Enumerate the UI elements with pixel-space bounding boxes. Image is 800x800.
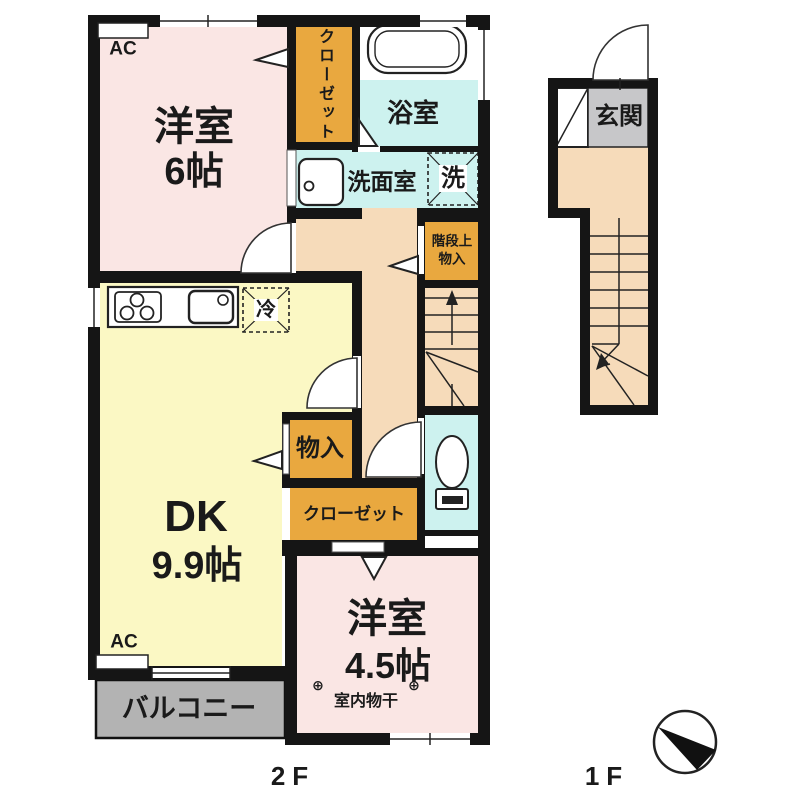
window [160,15,257,27]
bathtub-icon [368,25,466,73]
dk-size: 9.9帖 [152,547,243,585]
storage-label: 物入 [296,437,344,461]
window [152,666,230,680]
washbasin-icon [299,159,343,205]
entrance-door-arc [593,25,648,80]
drying-symbol: ⊕ [312,678,324,692]
closet-north-label: クローゼット [316,28,332,142]
ac-label: AC [109,40,136,59]
ac-label: AC [110,633,137,652]
dk-name: DK [164,495,228,539]
stove-icon [115,292,161,322]
ac-unit [98,23,148,38]
fridge-label: 冷 [254,299,278,321]
drying-label: 室内物干 [334,694,398,710]
toilet-icon [436,436,468,509]
kitchen-sink-icon [189,291,233,323]
compass-icon [654,711,716,773]
washer-label: 洗 [439,165,467,192]
room-6jo-size: 6帖 [164,153,223,191]
room-6jo-name: 洋室 [154,107,234,147]
genkan-label: 玄関 [595,105,643,129]
ac-unit [96,655,148,669]
washroom-label: 洗面室 [348,171,417,194]
stair-storage-line1: 階段上 [432,234,473,248]
window [390,733,470,745]
shoe-cabinet [556,88,588,147]
window [88,288,100,327]
floorplan: AC 洋室 6帖 クローゼット 浴室 洗面室 洗 階段上 物入 冷 DK 9.9… [0,0,800,800]
closet-south-label: クローゼット [303,506,405,523]
window [420,15,466,27]
floor-1f-label: 1F [585,763,629,789]
bath-label: 浴室 [387,100,439,126]
drying-symbol: ⊕ [408,678,420,692]
window [478,30,490,100]
floor-2f-label: 2F [271,763,315,789]
stair-storage-line2: 物入 [439,252,466,266]
balcony-label: バルコニー [122,696,256,723]
closet-sliding-door [332,542,384,552]
room-45jo-name: 洋室 [347,599,427,639]
